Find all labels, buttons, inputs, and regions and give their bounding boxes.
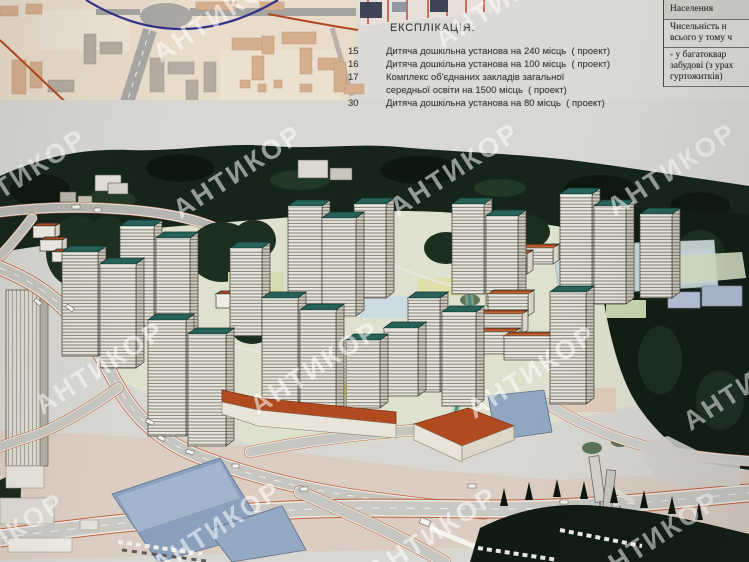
teal-roof [148, 314, 194, 320]
legend-item-number: 16 [348, 58, 370, 71]
legend-item-number: 15 [348, 45, 370, 58]
residential-tower [594, 200, 634, 304]
legend-item-30: 30 Дитяча дошкільна установа на 80 місць… [348, 97, 636, 110]
legend-item-text: Дитяча дошкільна установа на 80 місць ( … [386, 97, 605, 110]
legend-title: ЕКСПЛІКАЦІЯ: [390, 22, 636, 34]
orange-roof [33, 223, 60, 226]
residential-tower [188, 328, 234, 446]
legend-item-15: 15 Дитяча дошкільна установа на 240 місц… [348, 45, 636, 58]
legend-item-17: 17 Комплекс об'єднаних закладів загально… [348, 71, 636, 84]
residential-tower [148, 314, 194, 436]
residential-tower [640, 208, 680, 298]
population-table-row-multiflat: - у багатоквар забудові (з урах гуртожит… [664, 48, 749, 87]
orange-roof [40, 237, 67, 240]
legend-item-number: 17 [348, 71, 370, 84]
legend-item-17-line2: середньої освіти на 1500 місць ( проект) [348, 84, 636, 97]
teal-roof [288, 200, 330, 206]
school-building [502, 332, 558, 360]
population-table: Населення Чисельність н всього у тому ч … [663, 0, 749, 87]
residential-tower [442, 306, 484, 406]
render-3d [0, 100, 749, 562]
teal-roof [550, 286, 594, 292]
legend-block: ЕКСПЛІКАЦІЯ: 15 Дитяча дошкільна установ… [348, 22, 636, 110]
teal-roof [346, 334, 388, 340]
poster-photo: ЕКСПЛІКАЦІЯ: 15 Дитяча дошкільна установ… [0, 0, 749, 562]
teal-roof [120, 220, 162, 226]
residential-tower [384, 322, 426, 396]
teal-roof [262, 292, 306, 298]
population-table-row-total: Чисельність н всього у тому ч [664, 20, 749, 48]
residential-tower [300, 304, 344, 414]
residential-tower [346, 334, 388, 408]
residential-tower [100, 258, 144, 368]
legend-item-number: 30 [348, 97, 370, 110]
residential-tower [262, 292, 306, 402]
teal-roof [62, 246, 106, 252]
teal-roof [442, 306, 484, 312]
legend-item-text: Комплекс об'єднаних закладів загальної [386, 71, 564, 84]
residential-tower [322, 212, 364, 316]
legend-item-text: Дитяча дошкільна установа на 240 місць (… [386, 45, 610, 58]
teal-roof [300, 304, 344, 310]
legend-item-text: Дитяча дошкільна установа на 100 місць (… [386, 58, 610, 71]
legend-item-16: 16 Дитяча дошкільна установа на 100 місц… [348, 58, 636, 71]
residential-tower [550, 286, 594, 404]
population-table-header: Населення [664, 0, 749, 20]
teal-roof [384, 322, 426, 328]
legend-item-text: середньої освіти на 1500 місць ( проект) [386, 84, 567, 97]
kindergarten-pavilion [33, 223, 60, 238]
teal-roof [156, 232, 198, 238]
teal-roof [100, 258, 144, 264]
residential-tower [62, 246, 106, 356]
teal-roof [322, 212, 364, 218]
teal-roof [188, 328, 234, 334]
